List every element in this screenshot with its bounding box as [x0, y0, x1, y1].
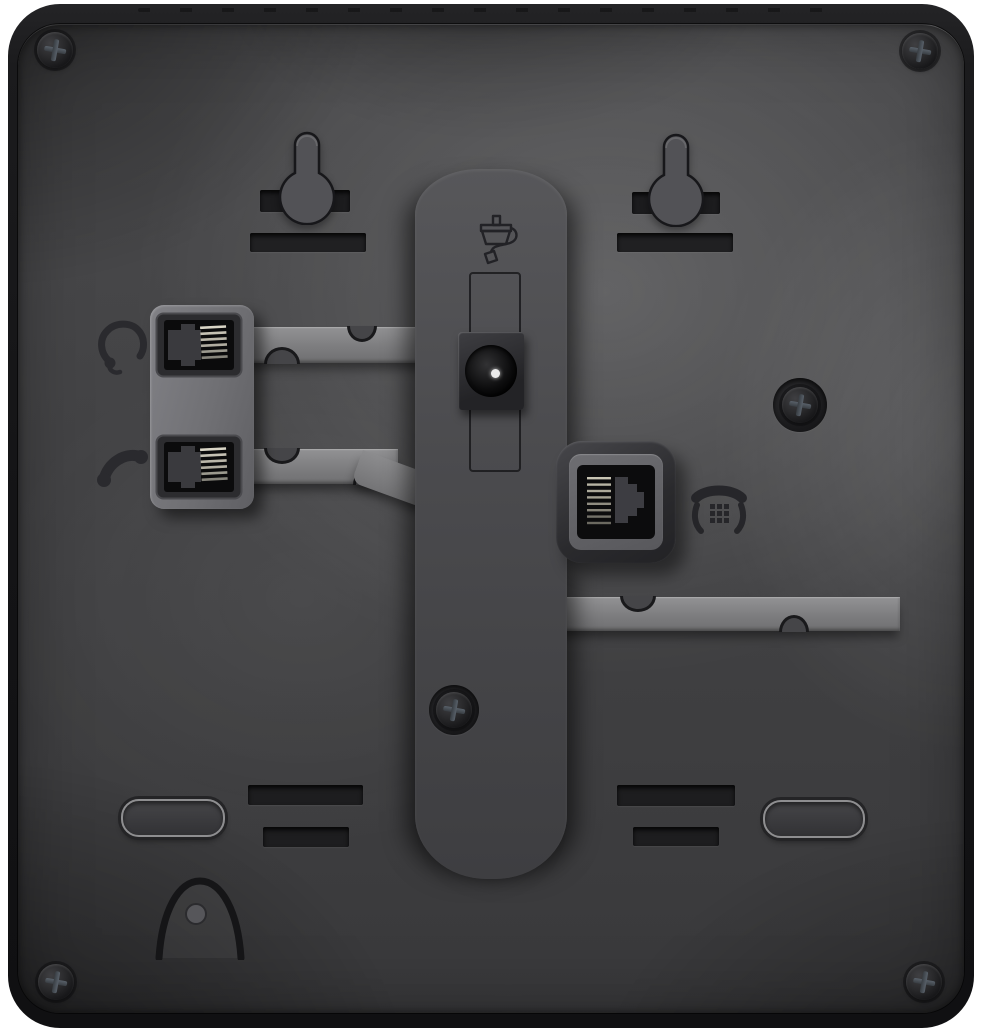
handset-icon [96, 444, 148, 490]
cable-notch [264, 347, 300, 364]
dc-barrel-socket [465, 345, 517, 397]
telephone-icon [686, 481, 752, 537]
stand-slot [248, 785, 363, 805]
mount-slot-top-left [250, 233, 366, 252]
rj45-plate [569, 454, 663, 550]
cable-hook-recess [152, 872, 248, 960]
cable-notch [620, 596, 656, 612]
phone-rear-shell [8, 4, 974, 1028]
panel-screw [782, 387, 818, 423]
wall-mount-keyhole-left [272, 125, 342, 225]
top-edge-vents [138, 8, 838, 12]
dc-power-jack [458, 332, 524, 410]
rubber-foot-right [763, 800, 865, 838]
stand-slot [263, 827, 349, 847]
cable-channel-strip-top [236, 327, 428, 363]
handset-port [155, 434, 243, 500]
wall-mount-keyhole-right [641, 127, 711, 227]
corner-screw-bottom-left [38, 964, 74, 1000]
stand-slot [617, 785, 735, 806]
stand-slot [633, 827, 719, 846]
line-port [556, 441, 676, 563]
mount-slot-top-right [617, 233, 733, 252]
dc-center-pin [491, 369, 500, 378]
product-photo-back-of-phone [0, 0, 982, 1032]
rj45-socket [577, 465, 655, 539]
headset-port [155, 312, 243, 378]
cable-notch [264, 448, 300, 464]
cable-channel-strip-right [552, 597, 900, 631]
panel-screw-recess [773, 378, 827, 432]
cable-notch [779, 615, 809, 632]
corner-screw-top-left [37, 32, 73, 68]
headset-icon [96, 318, 148, 376]
corner-screw-bottom-right [906, 964, 942, 1000]
corner-screw-top-right [902, 33, 938, 69]
stand-channel-screw [436, 692, 472, 728]
cable-notch [347, 326, 377, 342]
stand-channel-screw-recess [429, 685, 479, 735]
rubber-foot-left [121, 799, 225, 837]
power-plug-icon [474, 213, 520, 271]
